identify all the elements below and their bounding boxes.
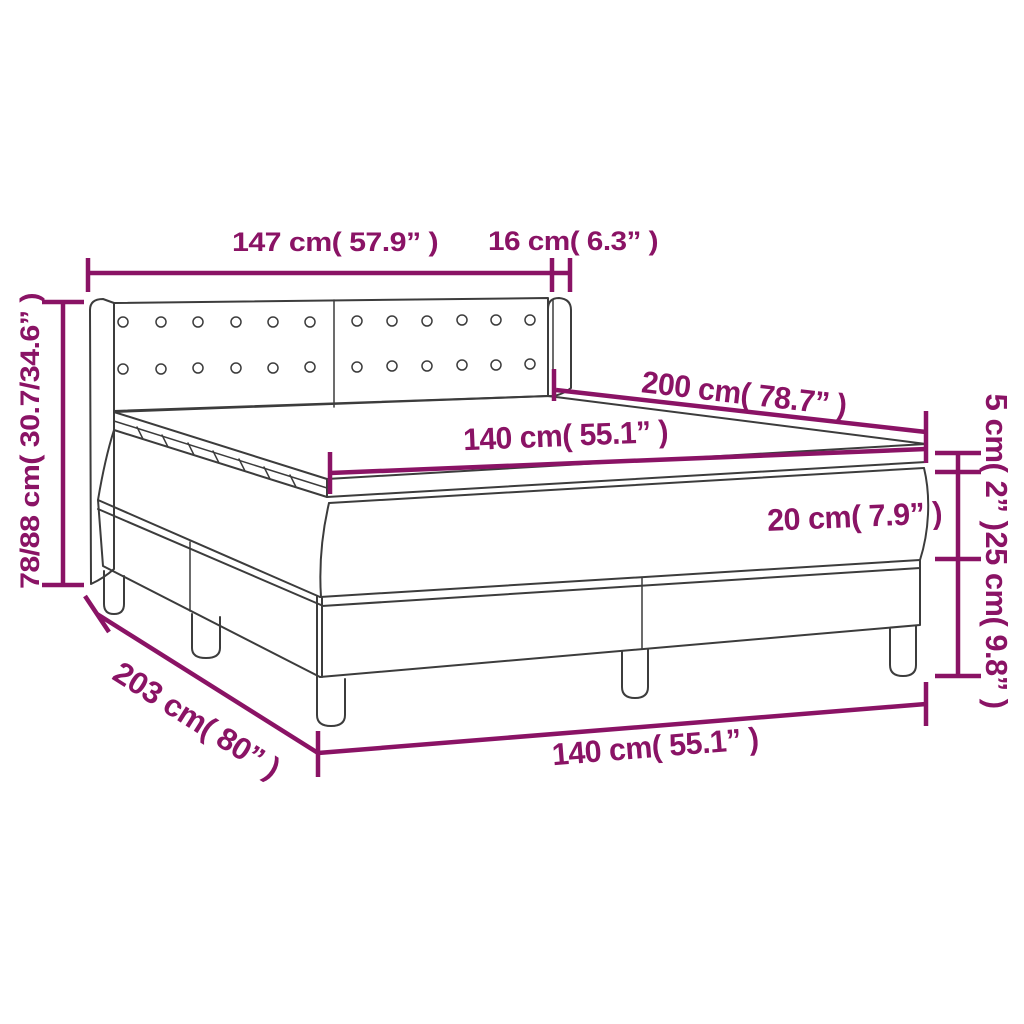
topper-zipper-line xyxy=(114,421,327,488)
topper-height-label: 5 cm( 2” ) xyxy=(979,394,1014,531)
headboard-panels xyxy=(114,298,548,411)
base-front-corner-edge xyxy=(317,596,322,677)
dim-mattress-height: 20 cm( 7.9” ) xyxy=(766,495,942,538)
bed-length-label: 200 cm( 78.7” ) xyxy=(640,364,849,422)
topper-left-face xyxy=(114,430,327,497)
headboard-buttons xyxy=(118,315,535,374)
dim-wing-width: 16 cm( 6.3” ) xyxy=(488,226,658,256)
mattress-height-label: 20 cm( 7.9” ) xyxy=(766,495,942,538)
dim-base-width: 140 cm( 55.1” ) xyxy=(318,682,926,777)
bed-leg xyxy=(890,626,916,676)
dimension-line xyxy=(330,449,926,473)
dim-mattress-width: 140 cm( 55.1” ) xyxy=(330,414,926,494)
diagram-canvas: 147 cm( 57.9” ) 16 cm( 6.3” ) 78/88 cm( … xyxy=(0,0,1024,1024)
base-width-label: 140 cm( 55.1” ) xyxy=(551,721,760,772)
wing-width-label: 16 cm( 6.3” ) xyxy=(488,226,658,256)
bed-dimension-diagram: 147 cm( 57.9” ) 16 cm( 6.3” ) 78/88 cm( … xyxy=(0,0,1024,1024)
bed-leg xyxy=(192,614,220,658)
headboard-right-wing xyxy=(548,298,571,396)
mattress-width-label: 140 cm( 55.1” ) xyxy=(462,414,668,458)
bed-leg xyxy=(622,649,648,698)
headboard-width-label: 147 cm( 57.9” ) xyxy=(232,227,438,257)
dim-base-length: 203 cm( 80” ) xyxy=(85,596,318,786)
dim-total-height: 78/88 cm( 30.7/34.6” ) xyxy=(15,293,84,589)
total-height-label: 78/88 cm( 30.7/34.6” ) xyxy=(15,293,45,589)
mattress-front-left-curve xyxy=(320,503,329,597)
base-left-face xyxy=(98,500,321,677)
base-foot-face xyxy=(320,560,920,677)
dimension-ticks xyxy=(85,596,109,632)
dim-right-heights: 5 cm( 2” ) 25 cm( 9.8” ) xyxy=(935,394,1014,709)
bed-leg xyxy=(104,571,124,614)
bed-leg xyxy=(317,677,345,726)
mattress-left-edge xyxy=(98,430,114,500)
base-height-label: 25 cm( 9.8” ) xyxy=(979,532,1014,709)
